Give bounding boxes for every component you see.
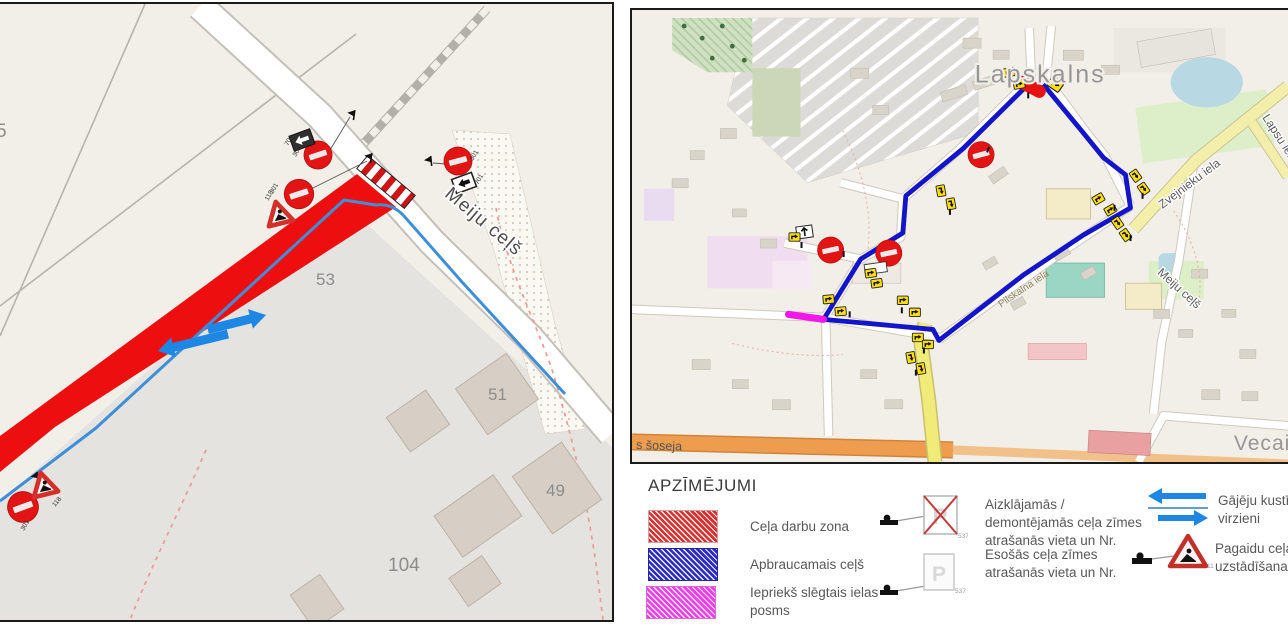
pedestrian-arrows-icon — [1146, 486, 1210, 528]
detail-map-canvas: 301 301 301 301 118 118 701 701 5 53 51 … — [0, 4, 612, 620]
legend: APZĪMĒJUMI Ceļa darbu zona Apbraucamais … — [630, 468, 1288, 644]
closed-street-swatch — [646, 586, 716, 619]
svg-text:P: P — [932, 563, 946, 586]
legend-item-label: Esošās ceļa zīmes atrašanās vieta un Nr. — [985, 546, 1147, 582]
legend-item-label: Ceļa darbu zona — [750, 518, 849, 536]
detail-map-panel: 301 301 301 301 118 118 701 701 5 53 51 … — [0, 2, 614, 622]
plot-number: 53 — [316, 270, 335, 289]
place-label-lapskalns: Lapskalns — [975, 60, 1106, 88]
existing-sign-icon: P — [924, 554, 954, 590]
detour-road-swatch — [648, 548, 718, 581]
closed-street-segment — [788, 314, 823, 319]
traffic-plan-page: { "left_map": { "street": "Meiju ceļš", … — [0, 0, 1288, 644]
legend-item-label: Aizklājamās / demontējamās ceļa zīmes at… — [985, 496, 1147, 550]
work-zone-swatch — [648, 510, 718, 543]
plot-number: 49 — [546, 481, 565, 500]
plot-number: 5 — [0, 121, 7, 142]
removed-sign-icon: P — [924, 496, 957, 534]
sign-number: 537 — [955, 588, 966, 595]
legend-item-label: Apbraucamais ceļš — [750, 556, 864, 574]
place-label-vecais: Vecais — [1234, 432, 1288, 455]
overview-map-panel: Pilskalna iela — [630, 8, 1288, 464]
legend-sign-icons: P 537 P 537 — [878, 490, 968, 620]
sign-number: 537 — [958, 533, 968, 540]
plot-number: 104 — [388, 555, 420, 576]
sign-number: 118 — [1207, 563, 1214, 570]
plot-number: 51 — [488, 385, 507, 404]
legend-item-label: Pagaidu ceļa zīmju uzstādīšanas vieta — [1215, 540, 1288, 576]
street-label-soseja: s šoseja — [636, 438, 682, 454]
legend-item-label: Gājēju kustības virzieni — [1218, 492, 1288, 528]
temporary-sign-icon: 118 — [1130, 530, 1214, 578]
legend-title: APZĪMĒJUMI — [648, 476, 757, 496]
overview-map-canvas: Pilskalna iela — [632, 10, 1288, 462]
